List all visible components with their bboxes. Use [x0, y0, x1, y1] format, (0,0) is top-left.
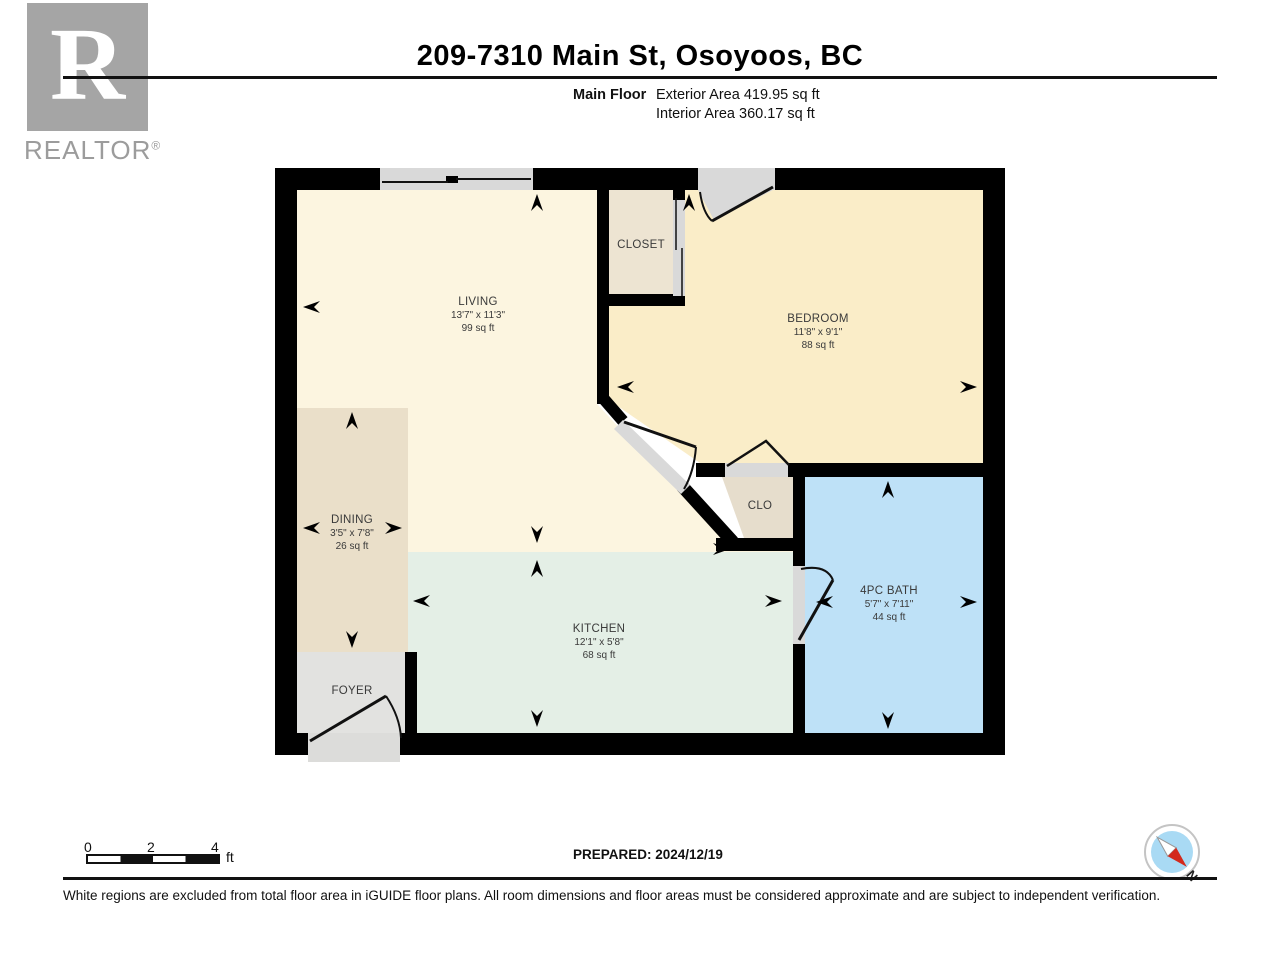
- scale-tick-0: 0: [84, 839, 92, 855]
- kitchen-area: 68 sq ft: [573, 649, 626, 662]
- bath-area: 44 sq ft: [860, 611, 918, 624]
- foyer-door-recess: [308, 733, 400, 762]
- bedroom-dims: 11'8" x 9'1": [787, 326, 849, 339]
- kitchen-dims: 12'1" x 5'8": [573, 636, 626, 649]
- dining-label: DINING 3'5" x 7'8" 26 sq ft: [330, 514, 374, 553]
- scale-tick-4: 4: [211, 839, 219, 855]
- bath-dims: 5'7" x 7'11": [860, 598, 918, 611]
- scale-unit: ft: [226, 849, 234, 865]
- kitchen-name: KITCHEN: [573, 623, 626, 636]
- kitchen-label: KITCHEN 12'1" x 5'8" 68 sq ft: [573, 623, 626, 662]
- foyer-label: FOYER: [331, 685, 372, 698]
- living-dims: 13'7" x 11'3": [451, 309, 505, 322]
- closet-name: CLOSET: [617, 239, 665, 252]
- dining-area: 26 sq ft: [330, 540, 374, 553]
- dining-name: DINING: [330, 514, 374, 527]
- scale-bar: [86, 854, 220, 864]
- foyer-name: FOYER: [331, 685, 372, 698]
- bath-name: 4PC BATH: [860, 585, 918, 598]
- disclaimer-text: White regions are excluded from total fl…: [63, 888, 1160, 903]
- bath-label: 4PC BATH 5'7" x 7'11" 44 sq ft: [860, 585, 918, 624]
- floor-plan-svg: [0, 0, 1280, 960]
- clo-door-opening: [725, 463, 788, 477]
- clo-name: CLO: [748, 500, 773, 513]
- floor-plan-page: R REALTOR® 209-7310 Main St, Osoyoos, BC…: [0, 0, 1280, 960]
- bedroom-entry-opening: [698, 168, 775, 190]
- scale-tick-2: 2: [147, 839, 155, 855]
- footer-divider: [63, 877, 1217, 880]
- bedroom-name: BEDROOM: [787, 313, 849, 326]
- closet-slider-opening: [673, 198, 685, 296]
- bedroom-area: 88 sq ft: [787, 339, 849, 352]
- closet-wall-stub: [673, 190, 685, 200]
- bedroom-label: BEDROOM 11'8" x 9'1" 88 sq ft: [787, 313, 849, 352]
- closet-label: CLOSET: [617, 239, 665, 252]
- prepared-date: PREPARED: 2024/12/19: [573, 847, 723, 862]
- dining-dims: 3'5" x 7'8": [330, 527, 374, 540]
- clo-label: CLO: [748, 500, 773, 513]
- living-area: 99 sq ft: [451, 322, 505, 335]
- living-label: LIVING 13'7" x 11'3" 99 sq ft: [451, 296, 505, 335]
- living-name: LIVING: [451, 296, 505, 309]
